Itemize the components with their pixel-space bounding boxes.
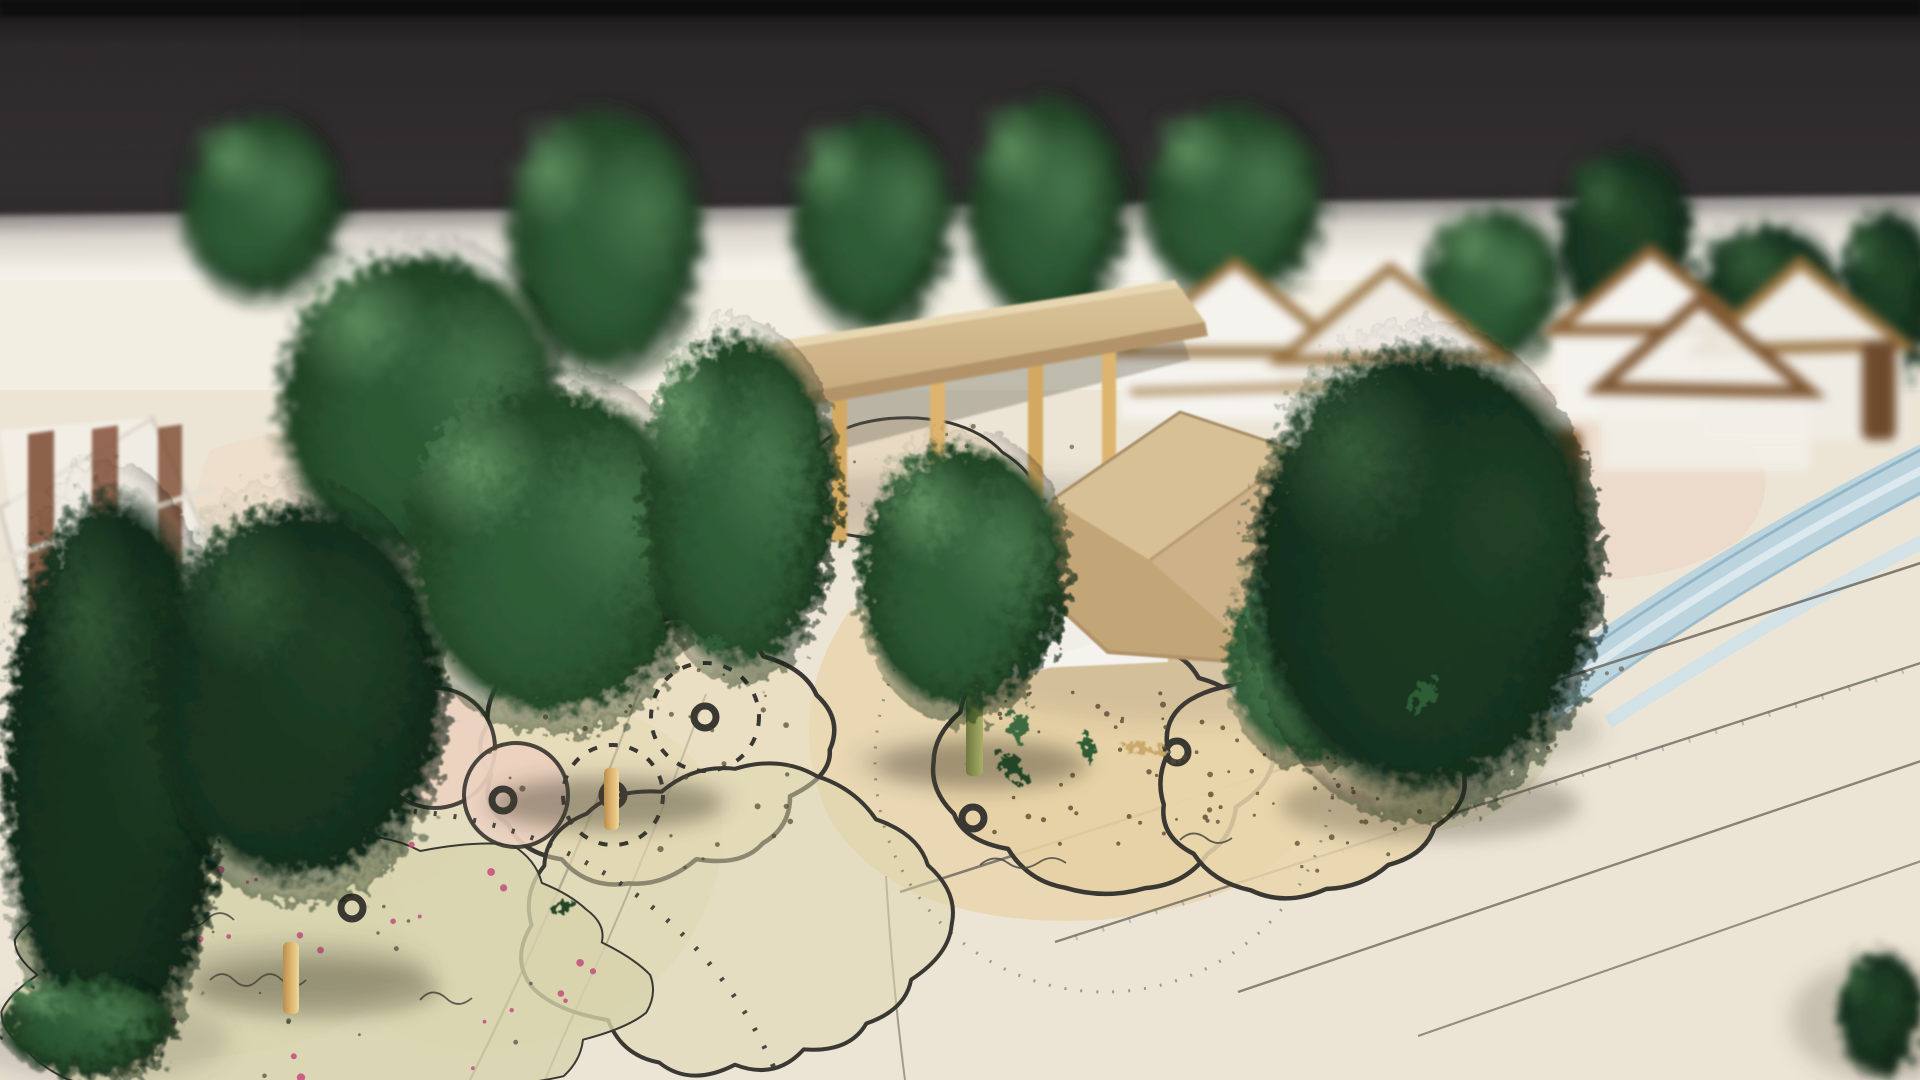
photo-vignette bbox=[0, 0, 1920, 1080]
model-photograph: ecke bbox=[0, 0, 1920, 1080]
